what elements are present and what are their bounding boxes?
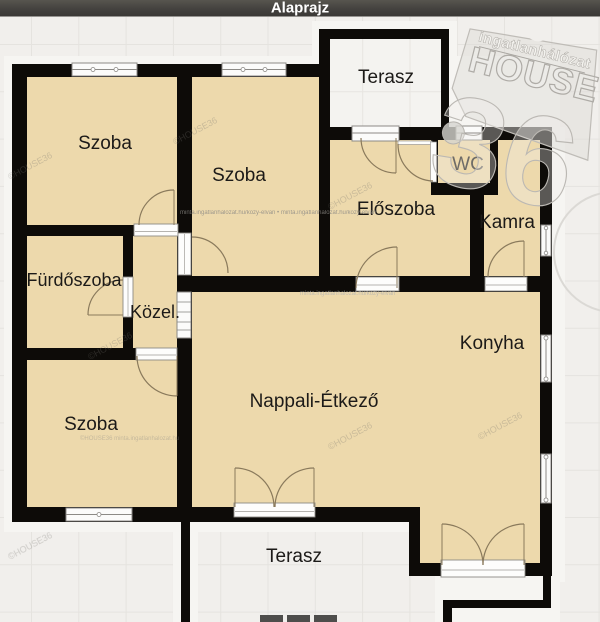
svg-text:Fürdőszoba: Fürdőszoba — [26, 270, 122, 290]
svg-text:Nappali-Étkező: Nappali-Étkező — [250, 391, 379, 412]
svg-text:Konyha: Konyha — [460, 333, 525, 354]
svg-text:Szoba: Szoba — [64, 414, 118, 435]
svg-text:minta.ingatlanhalozat.hu/kozy-: minta.ingatlanhalozat.hu/kozy-elvan — [300, 291, 395, 297]
svg-text:Közel.: Közel. — [130, 302, 180, 322]
svg-text:minta.ingatlanhalozat.hu/kozy-: minta.ingatlanhalozat.hu/kozy-elvan • mi… — [180, 210, 376, 216]
svg-text:Terasz: Terasz — [358, 67, 414, 88]
svg-text:©HOUSE36 minta.ingatlanhalozat: ©HOUSE36 minta.ingatlanhalozat.hu — [80, 435, 179, 442]
svg-text:Szoba: Szoba — [78, 133, 132, 154]
svg-text:Szoba: Szoba — [212, 165, 266, 186]
svg-text:Alaprajz: Alaprajz — [271, 0, 329, 17]
svg-text:Terasz: Terasz — [266, 546, 322, 567]
